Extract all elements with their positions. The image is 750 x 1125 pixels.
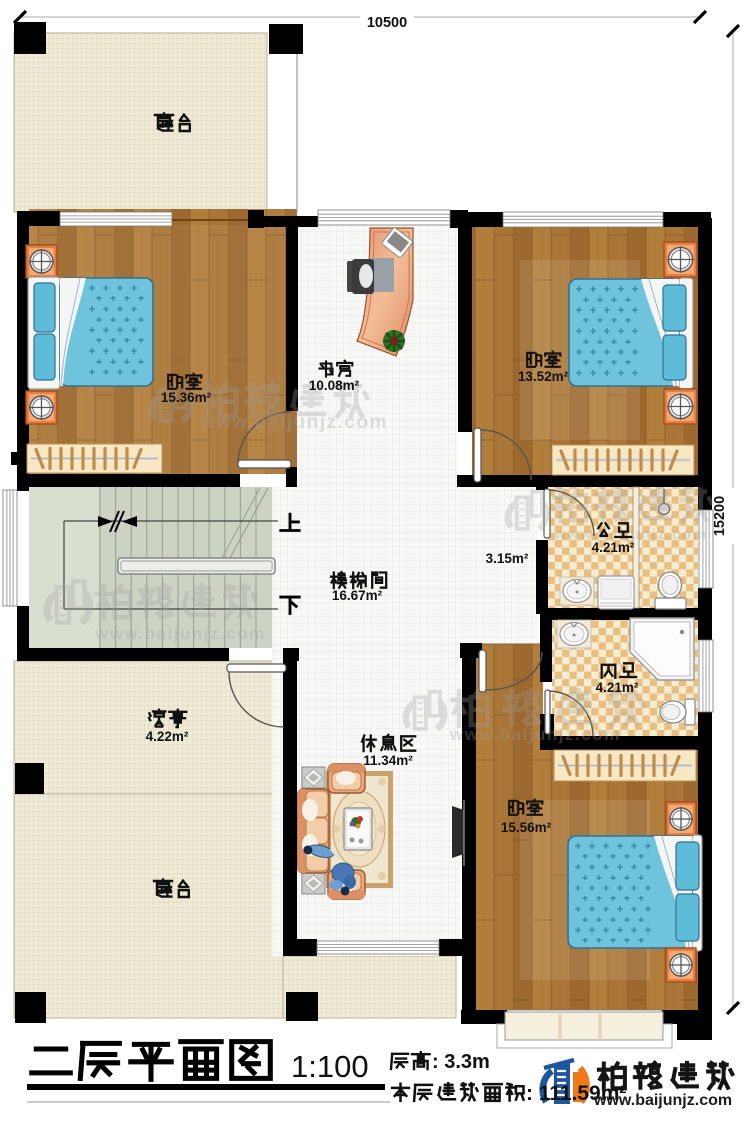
svg-text:www.baijunjz.com: www.baijunjz.com (199, 412, 388, 433)
svg-text:www.baijunjz.com: www.baijunjz.com (449, 725, 621, 744)
svg-text:15.56m²: 15.56m² (501, 820, 552, 835)
svg-text:10.08m²: 10.08m² (309, 378, 360, 393)
svg-text:16.67m²: 16.67m² (332, 588, 383, 603)
svg-text:4.21m²: 4.21m² (596, 680, 639, 695)
svg-text:www.baijunjz.com: www.baijunjz.com (593, 1092, 732, 1109)
svg-text:13.52m²: 13.52m² (518, 369, 569, 384)
svg-text:10500: 10500 (367, 15, 407, 31)
svg-text:1:100: 1:100 (291, 1049, 369, 1084)
svg-text:11.34m²: 11.34m² (363, 753, 413, 768)
svg-text:4.21m²: 4.21m² (592, 540, 635, 555)
svg-text:4.22m²: 4.22m² (146, 729, 189, 744)
svg-text:15.36m²: 15.36m² (161, 390, 212, 405)
svg-text:: 3.3m: : 3.3m (432, 1051, 490, 1073)
svg-text:15200: 15200 (712, 496, 728, 536)
svg-text:3.15m²: 3.15m² (486, 551, 529, 566)
svg-text:www.baijunjz.com: www.baijunjz.com (94, 624, 266, 643)
